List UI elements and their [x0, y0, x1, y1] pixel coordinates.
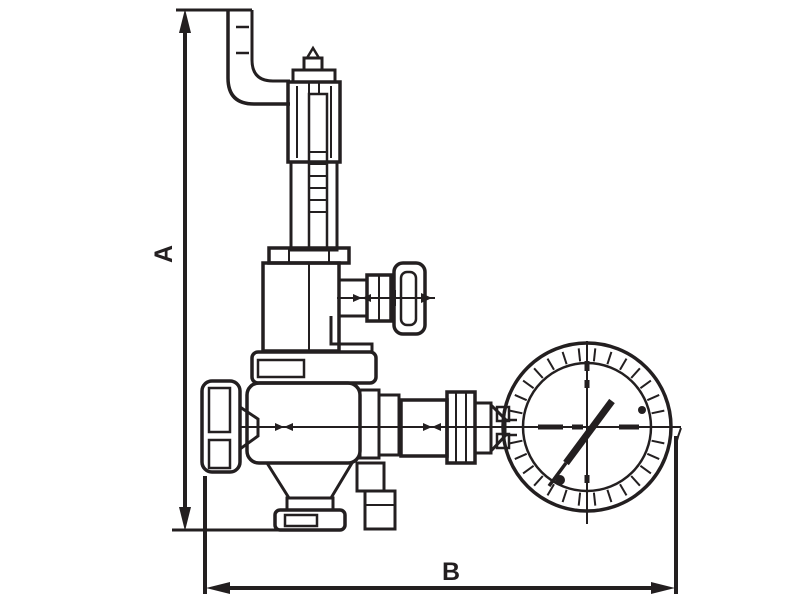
- gauge-tick: [579, 348, 580, 361]
- side-centerline-mark-right: [353, 294, 362, 302]
- dim-b-arrow-left: [206, 582, 230, 594]
- dim-a-label: A: [150, 245, 178, 263]
- knob-outer: [202, 381, 240, 472]
- valve-body: [241, 383, 513, 463]
- gauge-tick: [510, 441, 523, 444]
- body-flange: [252, 352, 376, 383]
- dim-a-arrow-up: [179, 9, 191, 33]
- outlet-flange-inner: [285, 515, 317, 526]
- body-outer: [247, 383, 360, 463]
- dimension-a: A: [150, 9, 340, 531]
- gauge-crosshair-dashes: [538, 361, 639, 483]
- gauge-tick: [579, 493, 580, 506]
- body-centerline-mark-a1: [275, 423, 284, 431]
- dim-a-arrow-down: [179, 507, 191, 531]
- gauge-tick: [515, 454, 527, 459]
- gauge-tick: [652, 441, 665, 444]
- body-centerline-mark-b1: [423, 423, 432, 431]
- drain-foot: [365, 491, 395, 529]
- gauge-tick: [631, 368, 640, 378]
- side-outlet: [337, 263, 435, 334]
- knob-groove-bottom: [209, 440, 230, 468]
- flange-outer: [252, 352, 376, 383]
- outlet-stub: [287, 498, 333, 510]
- bottom-outlet: [267, 463, 395, 530]
- gauge-tick: [620, 484, 627, 495]
- spring-stem: [309, 94, 327, 248]
- gauge-tick: [548, 359, 555, 370]
- housing-top-nub: [304, 58, 322, 70]
- gauge-tick: [563, 490, 567, 502]
- knob-groove-top: [209, 388, 230, 432]
- gauge-tick: [534, 476, 543, 486]
- valve-dimension-diagram: A B: [0, 0, 800, 598]
- bonnet-body: [263, 263, 339, 351]
- gauge-tick: [523, 381, 534, 389]
- dim-b-label: B: [442, 558, 460, 586]
- diagram-canvas: A B: [0, 0, 800, 598]
- gauge-tick: [523, 466, 534, 474]
- gauge-tick: [534, 368, 543, 378]
- pressure-gauge: [496, 341, 681, 524]
- housing-cap: [293, 70, 335, 82]
- gauge-tick: [640, 466, 651, 474]
- gauge-tick: [620, 359, 627, 370]
- body-rib-2: [379, 395, 399, 455]
- gauge-tick: [594, 493, 595, 506]
- elbow-pipe: [228, 10, 290, 104]
- gauge-tick: [594, 348, 595, 361]
- gauge-tick: [647, 454, 659, 459]
- gauge-tick: [640, 381, 651, 389]
- body-centerline-mark-a2: [284, 423, 293, 431]
- body-rib-1: [360, 390, 379, 458]
- gauge-tick: [652, 411, 665, 414]
- gauge-tick: [631, 476, 640, 486]
- elbow-pipe-inner: [252, 10, 290, 81]
- gauge-needle-hub-dot: [555, 475, 565, 485]
- dim-b-arrow-right: [651, 582, 675, 594]
- gauge-tick: [647, 395, 659, 400]
- body-centerline-mark-b2: [432, 423, 441, 431]
- elbow-pipe-outer: [228, 10, 290, 104]
- gauge-tick: [607, 352, 611, 364]
- flange-inner: [258, 360, 304, 377]
- gauge-tick: [607, 490, 611, 502]
- drain-upper: [357, 463, 384, 491]
- gauge-needle: [566, 401, 612, 463]
- gauge-face-dot: [638, 406, 646, 414]
- outlet-taper: [267, 463, 352, 498]
- spring-stem-top: [309, 82, 319, 94]
- bonnet: [263, 263, 372, 352]
- gauge-tick: [515, 395, 527, 400]
- gauge-tick: [510, 411, 523, 414]
- gauge-tick: [563, 352, 567, 364]
